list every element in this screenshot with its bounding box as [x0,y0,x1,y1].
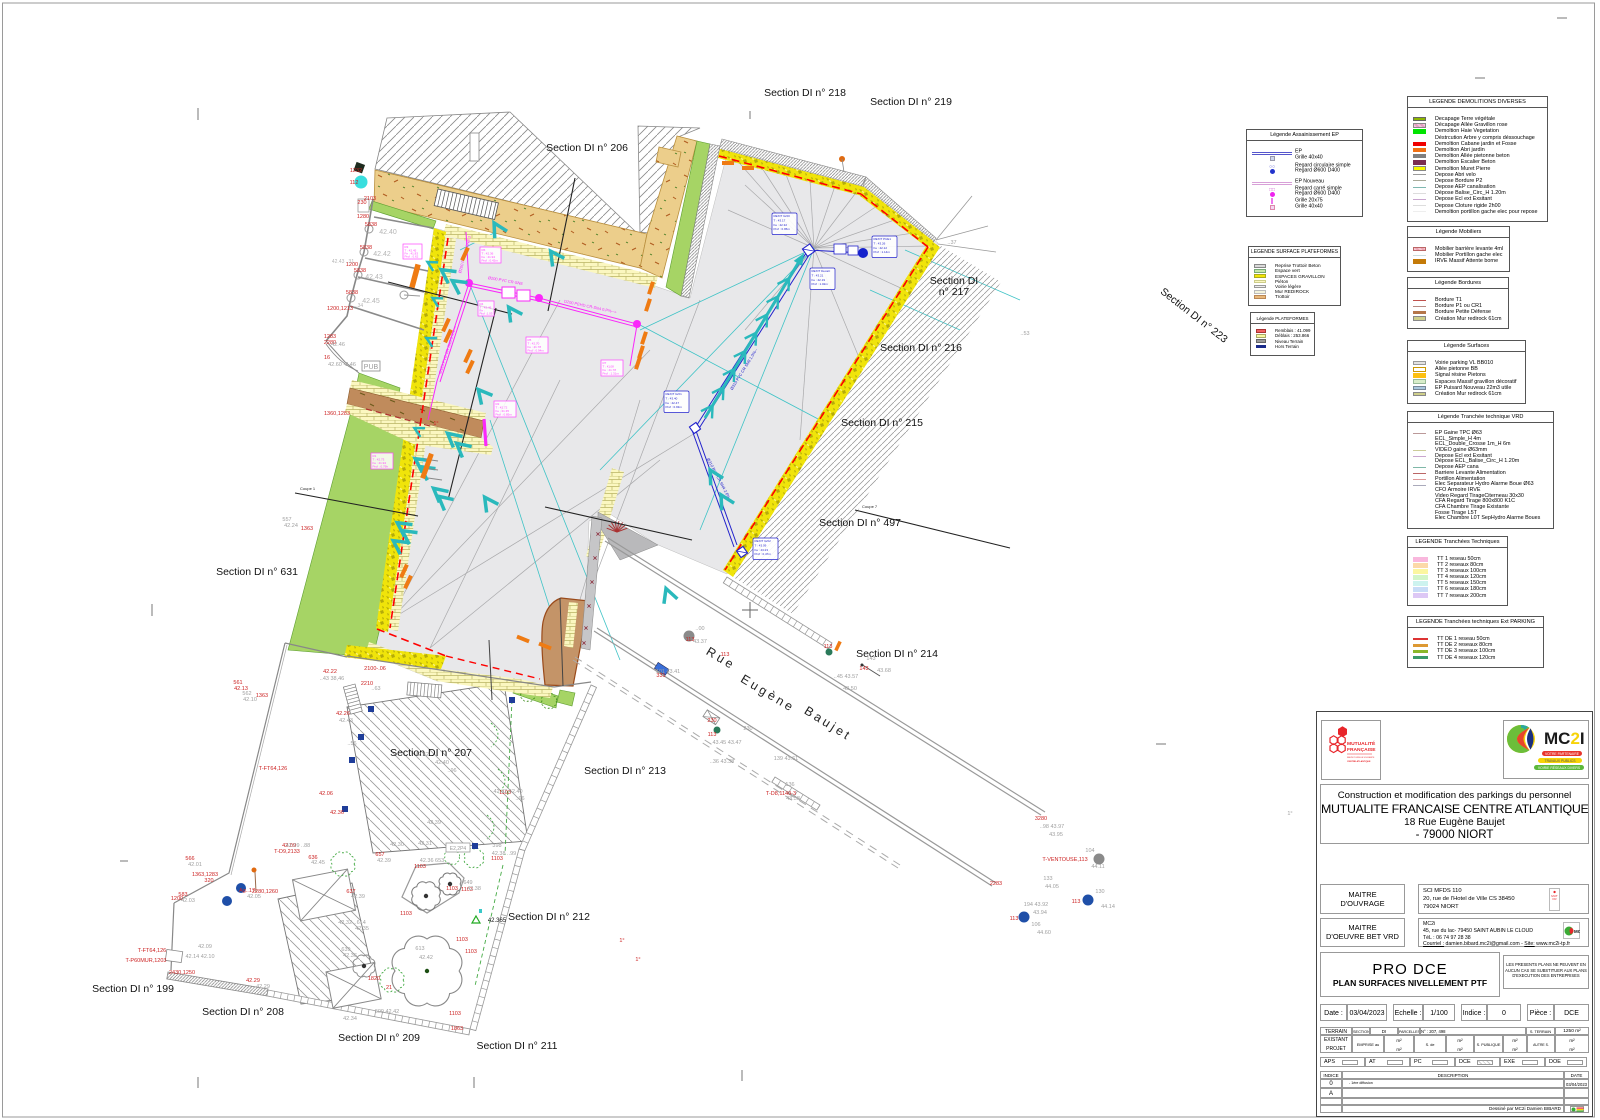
svg-text:Section DI n° 206: Section DI n° 206 [546,142,628,154]
svg-text:42.34: 42.34 [343,1016,357,1022]
svg-text:..96: ..96 [515,796,524,802]
svg-text:..34: ..34 [355,303,364,309]
svg-text:Section DI n° 211: Section DI n° 211 [476,1040,557,1052]
svg-text:Section DI n° 207: Section DI n° 207 [390,747,472,759]
svg-text:REXIT GrII2: REXIT GrII2 [755,539,772,543]
svg-text:..63: ..63 [371,686,380,692]
svg-text:21: 21 [386,985,392,991]
svg-text:REXIT DecaC: REXIT DecaC [812,269,832,273]
svg-text:Section DI n° 212: Section DI n° 212 [508,911,590,923]
svg-text:44.05: 44.05 [1045,884,1059,890]
svg-text:Fe : 42.47: Fe : 42.47 [666,401,680,405]
svg-text:1200,1213: 1200,1213 [327,306,353,312]
svg-text:42.42 42.40: 42.42 42.40 [493,789,522,795]
svg-text:1103: 1103 [449,1011,461,1017]
svg-text:609 42.42: 609 42.42 [375,1009,399,1015]
svg-text:Section DI n° 218: Section DI n° 218 [764,87,846,99]
svg-text:398: 398 [492,843,501,849]
svg-text:T-FT64,126: T-FT64,126 [259,766,287,772]
svg-text:1363: 1363 [256,693,268,699]
svg-text:5838: 5838 [360,245,372,251]
svg-text:1103: 1103 [465,949,477,955]
svg-text:42.365: 42.365 [488,918,507,924]
svg-text:42.46: 42.46 [331,342,345,348]
svg-text:2430,1250: 2430,1250 [169,970,195,976]
svg-text:Prof : 0.47m: Prof : 0.47m [755,552,772,556]
svg-text:T-VENTOUSE,113: T-VENTOUSE,113 [1042,857,1087,863]
svg-text:130: 130 [1095,889,1104,895]
svg-text:42.36 653: 42.36 653 [420,858,444,864]
svg-text:Section DI n° 219: Section DI n° 219 [870,96,952,108]
svg-text:113: 113 [708,732,717,738]
svg-text:136: 136 [785,782,794,788]
svg-text:FRANÇAISE: FRANÇAISE [1347,747,1376,753]
svg-text:1103: 1103 [446,886,458,892]
svg-text:Fe : 42.32: Fe : 42.32 [774,223,788,227]
svg-text:T : 43.17: T : 43.17 [774,218,786,222]
svg-text:Prof : 0.95m: Prof : 0.95m [774,227,791,231]
svg-text:42.24: 42.24 [284,523,298,529]
svg-text:42.45: 42.45 [362,298,380,305]
svg-text:Prof :1.05: Prof :1.05 [480,312,493,316]
svg-text:42.10: 42.10 [243,697,257,703]
svg-text:613: 613 [415,946,424,952]
svg-text:42.40: 42.40 [435,760,449,766]
svg-text:42.39: 42.39 [377,858,391,864]
svg-text:Fe : 43.23: Fe : 43.23 [755,548,769,552]
svg-text:43.50: 43.50 [843,686,857,692]
svg-text:42.35: 42.35 [355,926,369,932]
svg-text:Prof : 0.94m: Prof : 0.94m [528,349,545,353]
svg-text:..56: ..56 [347,741,356,747]
svg-text:42.36: 42.36 [343,953,357,959]
svg-text:Prof : 1.14m: Prof : 1.14m [874,250,891,254]
svg-text:42.30: 42.30 [390,842,404,848]
svg-text:REXIT PUE1: REXIT PUE1 [874,237,892,241]
svg-text:..37: ..37 [947,240,956,246]
svg-text:..53: ..53 [1020,331,1029,337]
svg-text:1103: 1103 [456,937,468,943]
svg-text:E2,2P4: E2,2P4 [450,846,467,852]
svg-text:43.58: 43.58 [786,796,800,802]
svg-text:42.39: 42.39 [351,894,365,900]
svg-text:42.22: 42.22 [323,669,337,675]
svg-text:42.09: 42.09 [198,944,212,950]
svg-text:Section DI n° 209: Section DI n° 209 [338,1032,420,1044]
svg-text:1232: 1232 [350,168,362,174]
svg-text:..45 43.57: ..45 43.57 [834,674,858,680]
svg-text:320: 320 [204,878,213,884]
svg-text:Section DI n° 497: Section DI n° 497 [819,517,901,529]
svg-text:CENTRE ATLANTIQUE: CENTRE ATLANTIQUE [1347,760,1371,763]
svg-text:..96: ..96 [447,768,456,774]
svg-text:1°: 1° [635,957,640,963]
svg-text:Section DI n° 199: Section DI n° 199 [92,983,174,995]
svg-text:Prof : 0.42m: Prof : 0.42m [482,259,499,263]
svg-text:42.29: 42.29 [256,984,270,990]
svg-text:42.60 -2.46: 42.60 -2.46 [328,362,356,368]
svg-text:n° 217: n° 217 [939,286,970,298]
svg-text:230: 230 [743,726,752,732]
svg-text:3280: 3280 [1035,816,1047,822]
svg-text:Section DI n° 208: Section DI n° 208 [202,1006,284,1018]
svg-text:TRAVAUX PUBLICS: TRAVAUX PUBLICS [1545,759,1577,763]
svg-text:42.43 ..31: 42.43 ..31 [332,259,354,265]
svg-text:42.42: 42.42 [373,251,391,258]
svg-text:1820: 1820 [368,976,380,982]
svg-text:42.43: 42.43 [339,718,353,724]
svg-text:42.39: 42.39 [427,820,441,826]
svg-text:..98 43.97: ..98 43.97 [1040,824,1064,830]
svg-text:230: 230 [707,718,716,724]
svg-text:REXIT GrII1: REXIT GrII1 [666,392,683,396]
svg-text:T : 43.40: T : 43.40 [666,396,678,400]
svg-text:42.43: 42.43 [365,274,383,281]
svg-text:1103: 1103 [400,911,412,917]
svg-text:113: 113 [721,652,730,658]
svg-text:Coupe 7: Coupe 7 [862,504,878,509]
svg-text:43.95: 43.95 [1049,832,1063,838]
svg-text:143: 143 [859,666,868,672]
svg-text:42.36: 42.36 [330,810,344,816]
svg-text:Section DI n° 216: Section DI n° 216 [880,342,962,354]
svg-text:112: 112 [350,180,359,186]
svg-text:16: 16 [324,355,330,361]
svg-text:42.06: 42.06 [319,791,333,797]
svg-text:T-D9,2133: T-D9,2133 [274,849,300,855]
svg-text:Prof : 0.85m: Prof : 0.85m [496,413,513,417]
svg-text:..43 38,46: ..43 38,46 [320,676,344,682]
svg-text:133: 133 [1043,876,1052,882]
svg-text:VOIRIE RÉSEAUX DIVERS: VOIRIE RÉSEAUX DIVERS [1538,765,1581,770]
svg-text:106: 106 [1031,922,1040,928]
svg-text:T : 43.21: T : 43.21 [812,273,824,277]
svg-text:VOTRE PARTENAIRE: VOTRE PARTENAIRE [1545,752,1580,756]
svg-text:44.14: 44.14 [1101,904,1115,910]
svg-text:1°: 1° [1287,811,1292,817]
svg-text:SANTE PLURIELLE SOLIDARITE: SANTE PLURIELLE SOLIDARITE [1347,756,1375,759]
svg-text:1280: 1280 [357,214,369,220]
svg-text:1103: 1103 [414,864,426,870]
svg-text:1863: 1863 [451,1026,463,1032]
svg-text:Fe : 42.19: Fe : 42.19 [812,278,826,282]
svg-text:42.38: 42.38 [467,886,481,892]
svg-text:1°: 1° [619,938,624,944]
svg-text:Prof : 0.62: Prof : 0.62 [405,255,419,259]
svg-text:42.05: 42.05 [247,894,261,900]
svg-text:113: 113 [1072,899,1081,905]
svg-text:Prof : 1.31m: Prof : 1.31m [603,372,620,376]
svg-text:194 43.92: 194 43.92 [1024,902,1048,908]
svg-text:43.37: 43.37 [693,639,707,645]
svg-text:42.01: 42.01 [188,862,202,868]
svg-text:42.38 ..99: 42.38 ..99 [492,851,516,857]
svg-text:42.45: 42.45 [311,860,325,866]
svg-text:T-P60MUR,1203: T-P60MUR,1203 [126,958,167,964]
svg-text:42.42: 42.42 [415,752,429,758]
svg-text:139 43.61: 139 43.61 [774,756,798,762]
svg-text:42.40: 42.40 [379,229,397,236]
svg-text:T : 43.09: T : 43.09 [755,543,767,547]
svg-text:43.94: 43.94 [1033,910,1047,916]
svg-text:Section DI n° 213: Section DI n° 213 [584,765,666,777]
svg-text:104: 104 [1085,848,1094,854]
svg-text:Section DI n° 631: Section DI n° 631 [216,566,298,578]
svg-text:Prof : 0.79h: Prof : 0.79h [373,465,389,469]
svg-text:MUTUALITÉ: MUTUALITÉ [1347,739,1376,747]
svg-text:44.60: 44.60 [1037,930,1051,936]
svg-text:113: 113 [824,644,833,650]
svg-text:101 43.41: 101 43.41 [656,669,680,675]
svg-text:5838: 5838 [365,222,377,228]
svg-text:T : 43.26: T : 43.26 [874,241,886,245]
svg-text:1°: 1° [433,421,438,427]
svg-text:42.09 ..88: 42.09 ..88 [286,843,310,849]
svg-text:Prof : 0.93m: Prof : 0.93m [666,405,683,409]
svg-text:1360,1283: 1360,1283 [324,411,350,417]
svg-text:Coupe 1: Coupe 1 [300,486,316,491]
svg-text:2283: 2283 [990,881,1002,887]
svg-text:..36 43.38: ..36 43.38 [710,759,734,765]
svg-text:42.31: 42.31 [418,841,432,847]
svg-text:113: 113 [1010,916,1019,922]
svg-text:143: 143 [866,656,875,662]
svg-text:43.45 43.47: 43.45 43.47 [712,740,741,746]
svg-text:Prof : 1.02m: Prof : 1.02m [812,282,829,286]
svg-text:42.03: 42.03 [181,898,195,904]
svg-text:42.26: 42.26 [336,711,350,717]
svg-text:T-FT64,126: T-FT64,126 [138,948,166,954]
svg-text:PUB: PUB [364,364,379,371]
svg-text:Section DI n° 215: Section DI n° 215 [841,417,923,429]
svg-text:2103: 2103 [364,196,376,202]
svg-text:MC2I: MC2I [1544,729,1585,748]
svg-text:REXIT Gr00: REXIT Gr00 [774,214,791,218]
svg-text:43.68: 43.68 [877,668,891,674]
svg-text:Fe : 42.12: Fe : 42.12 [874,246,888,250]
svg-text:44.11: 44.11 [1091,864,1104,870]
svg-text:..00: ..00 [695,626,704,632]
svg-text:42.42: 42.42 [419,955,433,961]
svg-text:MC: MC [1574,929,1580,934]
svg-text:5838: 5838 [346,290,358,296]
svg-text:2100-.06: 2100-.06 [364,666,386,672]
svg-text:42.14 42.10: 42.14 42.10 [185,954,214,960]
svg-text:1363: 1363 [301,526,313,532]
